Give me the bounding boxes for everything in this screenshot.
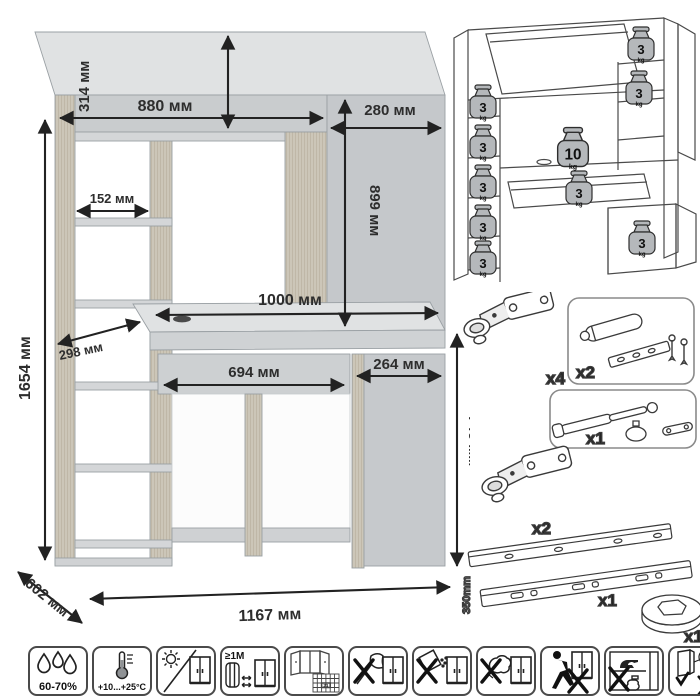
icon-no-overload — [604, 646, 664, 696]
damper-item: x2 — [568, 298, 694, 384]
hinge-item-2: x2 — [477, 445, 576, 538]
label-pedestal-width: 264 мм — [373, 356, 424, 373]
temperature-label: +10...+25°C — [98, 682, 147, 692]
cabinet-icon — [447, 657, 467, 683]
damper-qty: x2 — [576, 363, 595, 382]
svg-text:kg: kg — [479, 116, 486, 122]
sun-icon — [162, 650, 180, 668]
fastener-detail-icon — [694, 650, 700, 664]
hinge-item: x4 — [459, 292, 565, 388]
loaded-cabinet-icon — [610, 652, 658, 690]
svg-text:3: 3 — [479, 220, 486, 235]
label-side-height: 899 мм — [366, 185, 383, 236]
gas-lift-qty: x1 — [586, 429, 605, 448]
weight-3kg: 3kg — [470, 165, 496, 202]
svg-text:kg: kg — [479, 272, 486, 278]
svg-text:3: 3 — [635, 86, 642, 101]
svg-text:kg: kg — [479, 196, 486, 202]
weight-10kg: 10kg — [558, 128, 589, 171]
icon-no-direct-sunlight — [156, 646, 216, 696]
care-icon-row: 60-70% +10...+25°C — [28, 646, 696, 696]
icon-no-abrasives — [412, 646, 472, 696]
svg-text:3: 3 — [479, 180, 486, 195]
slides-qty: x1 — [598, 591, 617, 610]
icon-no-wet-cleaning — [476, 646, 536, 696]
weight-3kg: 3kg — [629, 221, 655, 258]
hinge-top-qty: x4 — [546, 369, 565, 388]
label-drawer-width: 694 мм — [228, 364, 279, 381]
cabinet-icon — [190, 657, 210, 683]
icon-heat-distance: ≥1M — [220, 646, 280, 696]
humidity-label: 60-70% — [39, 681, 77, 693]
svg-text:kg: kg — [479, 156, 486, 162]
cabinet-icon — [383, 657, 403, 683]
svg-text:3: 3 — [575, 186, 582, 201]
weight-3kg: 3kg — [626, 71, 652, 108]
slides-length: 350mm — [461, 576, 473, 614]
dim-total-width — [90, 587, 450, 599]
hinge-bottom-qty: x2 — [532, 519, 551, 538]
distance-arrows-icon — [242, 676, 251, 687]
label-desktop-width: 1000 мм — [258, 292, 322, 309]
main-drawing: 1654 мм 314 мм 880 мм 280 мм 899 мм 152 … — [0, 0, 470, 645]
icon-humidity: 60-70% — [28, 646, 88, 696]
label-total-height: 1654 мм — [17, 336, 34, 400]
weight-3kg: 3kg — [470, 241, 496, 278]
thermometer-icon — [117, 652, 134, 679]
grommet-item: x1 — [642, 595, 700, 644]
weight-3kg: 3kg — [470, 205, 496, 242]
weight-3kg: 3kg — [470, 125, 496, 162]
svg-text:kg: kg — [638, 252, 645, 258]
cabinet-icon — [255, 660, 275, 686]
svg-text:3: 3 — [479, 140, 486, 155]
svg-text:kg: kg — [635, 102, 642, 108]
label-total-width: 1167 мм — [238, 606, 301, 625]
svg-text:3: 3 — [637, 42, 644, 57]
icon-temperature: +10...+25°C — [92, 646, 152, 696]
svg-text:3: 3 — [479, 256, 486, 271]
x-mark — [355, 660, 373, 682]
icon-ventilation: 21 — [284, 646, 344, 696]
cabinet-icon — [511, 657, 531, 683]
grommet-qty: x1 — [684, 627, 700, 644]
icon-no-dragging — [540, 646, 600, 696]
label-hutch-width: 880 мм — [138, 98, 193, 115]
svg-text:3: 3 — [638, 236, 645, 251]
label-hutch-height: 314 мм — [76, 61, 93, 112]
weight-3kg: 3kg — [628, 27, 654, 64]
water-drops-icon — [38, 652, 76, 674]
gas-lift-item: x1 — [550, 390, 696, 448]
svg-text:kg: kg — [575, 202, 582, 208]
weight-3kg: 3kg — [566, 171, 592, 208]
icon-no-impact — [348, 646, 408, 696]
weight-3kg: 3kg — [470, 85, 496, 122]
radiator-icon — [226, 663, 239, 687]
svg-text:kg: kg — [569, 163, 577, 171]
load-capacity-diagram: 3kg 3kg 3kg 3kg 3kg 3kg 3kg 10kg 3kg 3kg — [438, 2, 700, 292]
calendar-day-label: 21 — [323, 683, 329, 688]
icon-proper-mounting — [668, 646, 700, 696]
open-window-icon — [291, 651, 329, 675]
hardware-panel: x4 x2 — [440, 292, 700, 644]
distance-label: ≥1M — [225, 651, 244, 662]
wall-cabinet-icon — [678, 650, 694, 676]
label-depth: 602 мм — [21, 575, 72, 621]
label-shelf-width: 152 мм — [90, 191, 135, 206]
svg-text:3: 3 — [479, 100, 486, 115]
assembly-diagram-page: 1654 мм 314 мм 880 мм 280 мм 899 мм 152 … — [0, 0, 700, 700]
label-side-width: 280 мм — [364, 102, 415, 119]
svg-text:kg: kg — [637, 58, 644, 64]
svg-text:10: 10 — [564, 146, 581, 163]
